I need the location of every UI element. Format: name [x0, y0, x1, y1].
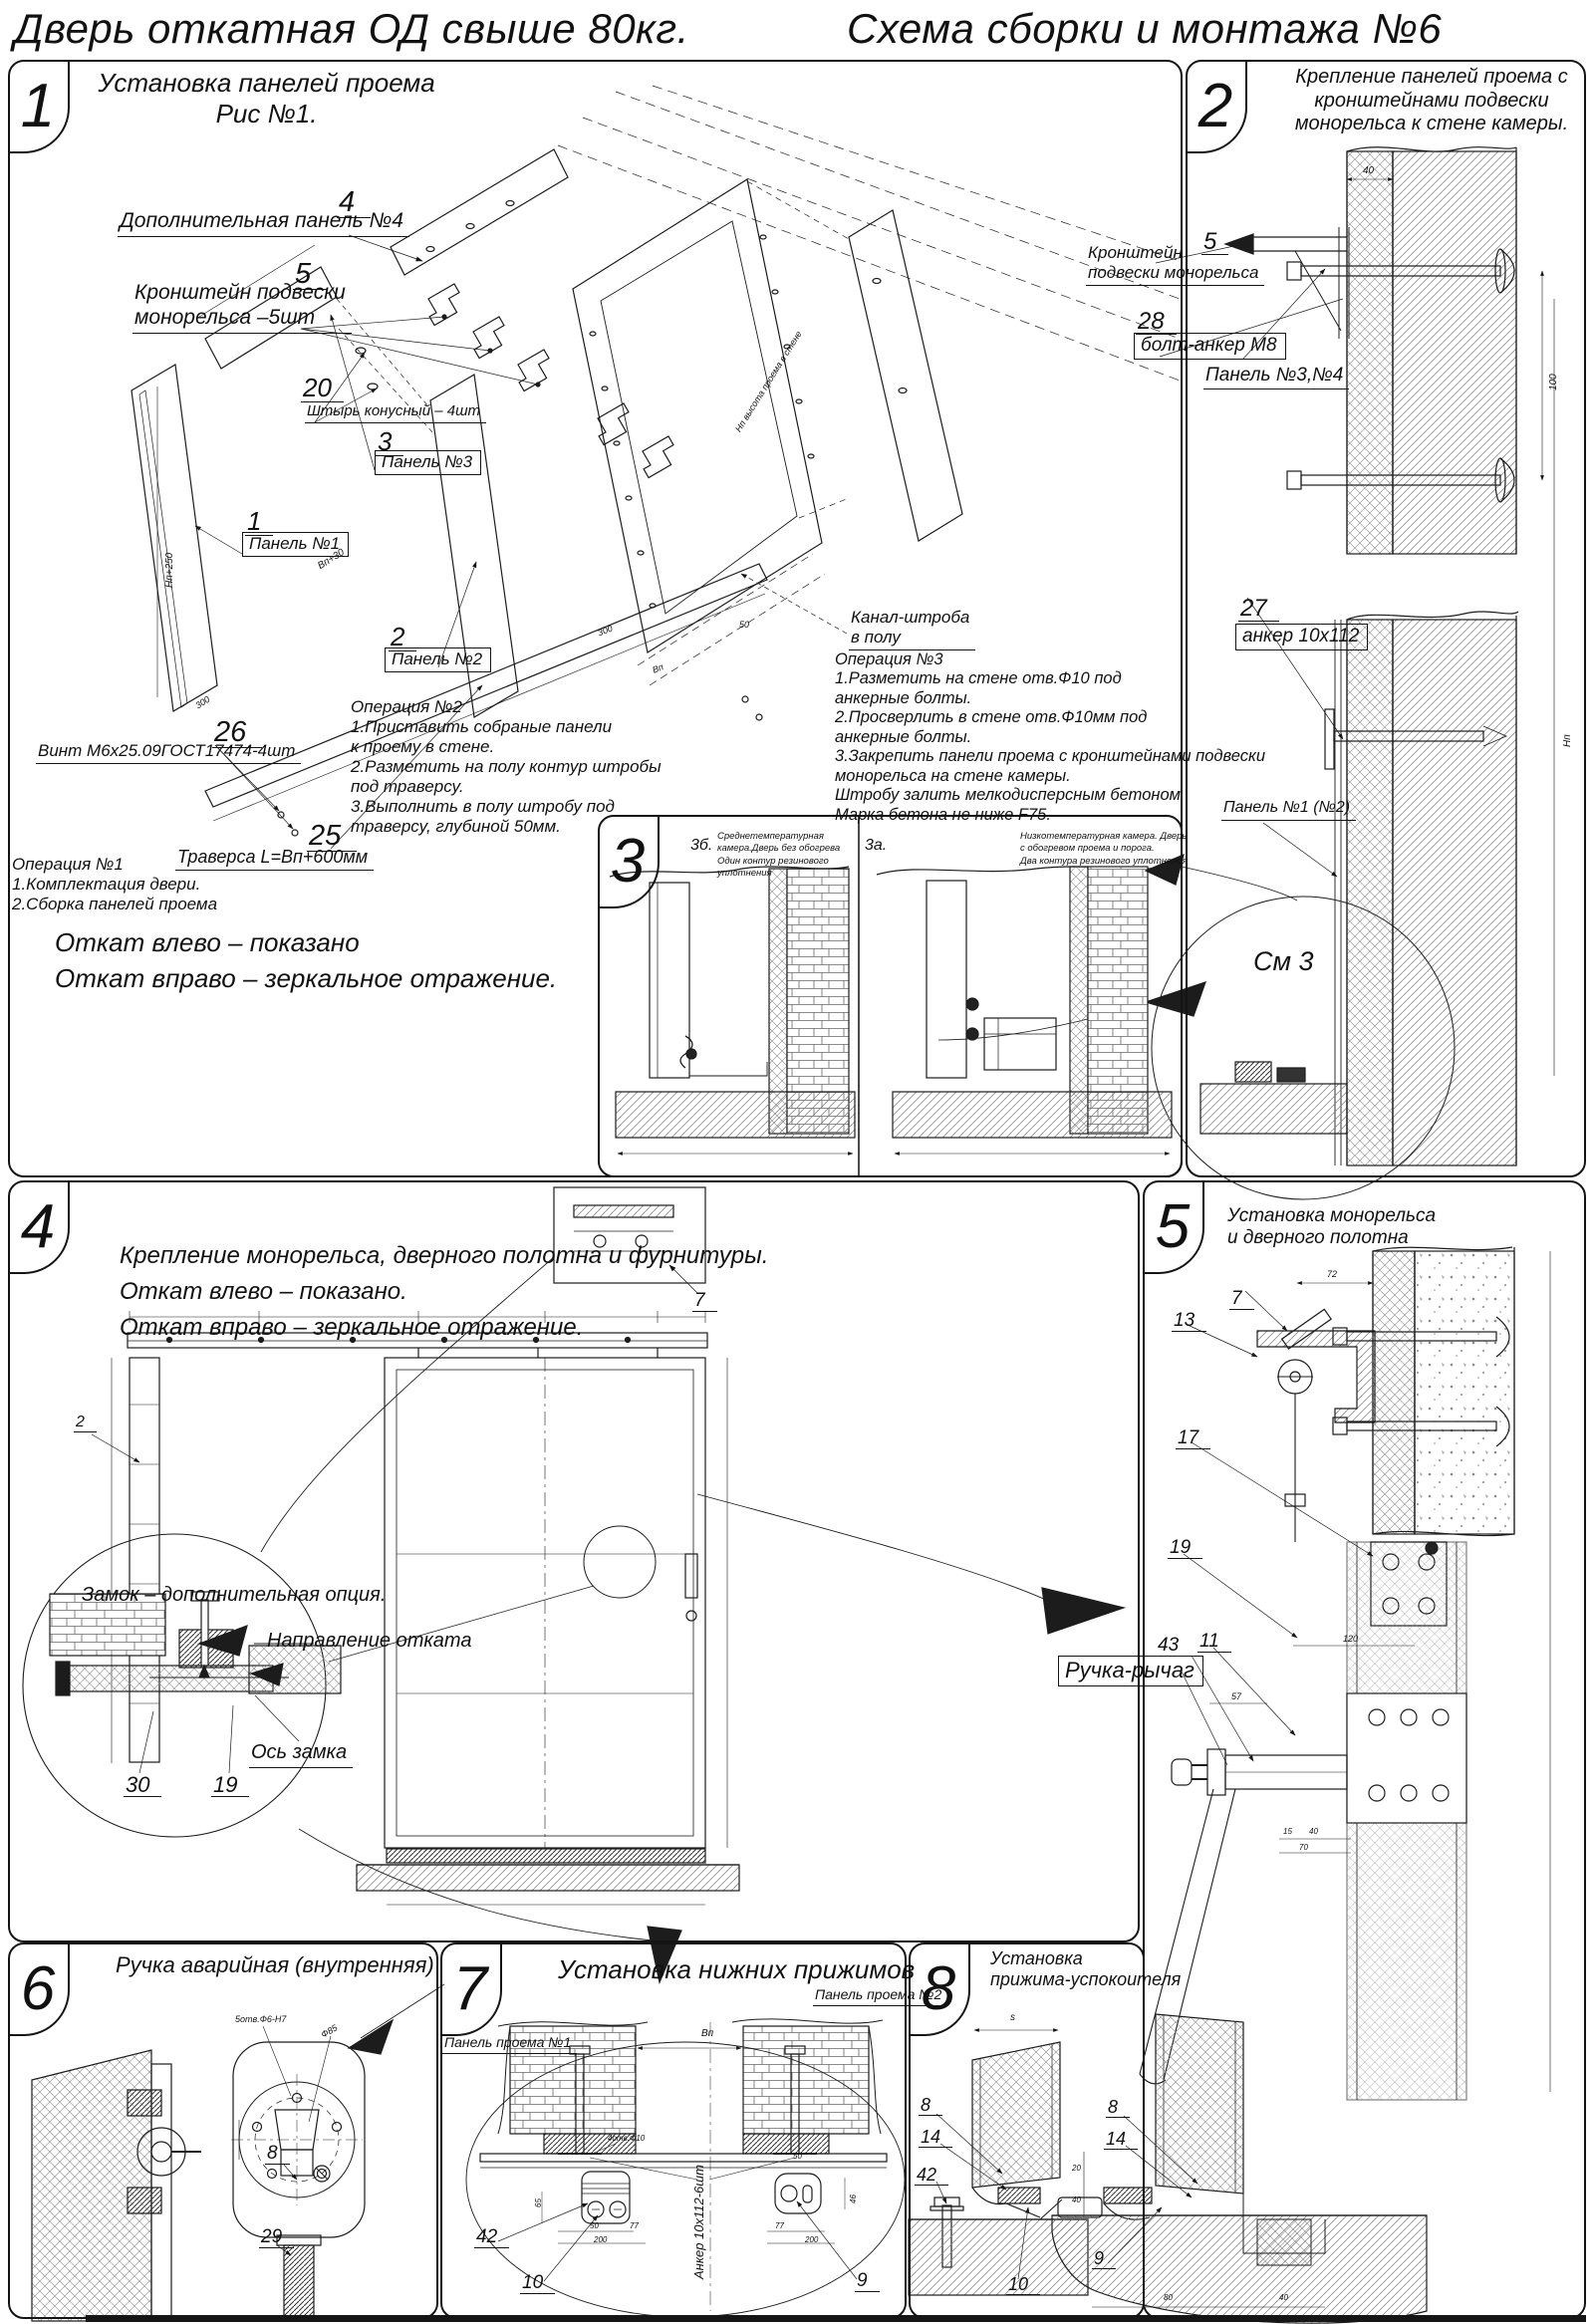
p6-callout29-num: 29: [259, 2227, 294, 2248]
p1-kanal-label: Канал-штроба в полу: [849, 608, 975, 650]
p1-callout20-num: 20: [301, 375, 344, 402]
p7-callout9-num: 9: [855, 2271, 880, 2292]
p6-callout8-num: 8: [265, 2144, 290, 2165]
p8-right-callout9-num: 9: [1092, 2249, 1116, 2269]
p2-title: Крепление панелей проема с кронштейнами …: [1283, 66, 1580, 136]
p1-callout5-label: Кронштейн подвески монорельса –5шт: [133, 281, 352, 334]
p5-callout17-num: 17: [1176, 1428, 1210, 1449]
p5-dim-15: 15: [1283, 1827, 1292, 1836]
p5-title: Установка монорельса и дверного полотна: [1227, 1205, 1436, 1250]
p1-operation3-note: Операция №3 1.Разметить на стене отв.Ф10…: [835, 650, 1265, 825]
sheet-title-right: Схема сборки и монтажа №6: [847, 4, 1442, 54]
p1-dim-height: Нп+250: [164, 553, 176, 588]
p7-dim-77a: 77: [630, 2221, 639, 2230]
p4-direction-label: Направление отката: [267, 1630, 472, 1654]
panel-7-number: 7: [453, 1953, 487, 2024]
panel-5-frame: [1143, 1180, 1586, 2319]
p2-dim-40: 40: [1363, 165, 1374, 177]
p5-callout11-num: 11: [1197, 1632, 1231, 1653]
p3-section-a-caption: Низкотемпературная камера. Дверь с обогр…: [1020, 831, 1192, 868]
p5-callout13-num: 13: [1172, 1311, 1206, 1332]
p2-see3-label: См 3: [1253, 946, 1314, 978]
p4-callout7-num: 7: [692, 1291, 717, 1312]
p1-callout26-label: Винт М6х25.09ГОСТ17474-4шт: [36, 741, 301, 764]
p2-callout27-label: анкер 10х112: [1235, 624, 1368, 650]
p4-callout19-num: 19: [211, 1773, 249, 1797]
p8-right-callout8-num: 8: [1106, 2098, 1130, 2118]
p1-slide-note: Откат влево – показано Откат вправо – зе…: [55, 924, 557, 997]
p5-callout19-num: 19: [1168, 1538, 1202, 1559]
p6-holes-note: 5отв.Ф6-Н7: [235, 2014, 286, 2025]
p7-callout10-num: 10: [520, 2273, 555, 2294]
p7-dim-200a: 200: [594, 2235, 607, 2244]
p7-dim-50a: 50: [590, 2221, 599, 2230]
p2-dim-100: 100: [1548, 374, 1560, 390]
panel-5-number: 5: [1156, 1191, 1190, 1262]
p7-dim-50b: 50: [793, 2152, 802, 2161]
sheet-title-left: Дверь откатная ОД свыше 80кг.: [14, 4, 689, 54]
p5-dim-120: 120: [1343, 1634, 1358, 1645]
p2-callout28-label: болт-анкер М8: [1134, 333, 1286, 360]
p4-lock-axis-label: Ось замка: [249, 1741, 353, 1768]
p2-callout5-label: Кронштейн подвески монорельса: [1086, 243, 1264, 286]
p1-operation1-note: Операция №1 1.Комплектация двери. 2.Сбор…: [12, 855, 217, 914]
p2-panel12-label: Панель №1 (№2): [1221, 799, 1356, 821]
panel-6-number: 6: [21, 1953, 55, 2024]
p4-title: Крепление монорельса, дверного полотна и…: [120, 1238, 768, 1346]
p8-right-callout14-num: 14: [1104, 2130, 1138, 2150]
p8-callout14-num: 14: [919, 2128, 952, 2148]
p5-callout7-num: 7: [1229, 1289, 1254, 1310]
p1-callout4-label: Дополнительная панель №4: [118, 209, 409, 237]
panel-2-number: 2: [1198, 71, 1232, 141]
p1-callout20-label: Штырь конусный – 4шт: [305, 402, 486, 423]
p3-section-a-num: 3а.: [865, 837, 887, 856]
p7-dim-65: 65: [534, 2198, 543, 2207]
p8-dim-40b: 40: [1279, 2293, 1288, 2302]
p7-dim-200b: 200: [805, 2235, 818, 2244]
p7-holes-note: 4отв.Ф10: [608, 2134, 645, 2143]
p8-callout8-num: 8: [919, 2096, 942, 2116]
p8-title: Установка прижима-успокоителя: [990, 1948, 1181, 1990]
p5-dim-70: 70: [1299, 1843, 1308, 1852]
p5-callout43-num: 43: [1156, 1636, 1191, 1657]
p8-callout10-num: 10: [1006, 2275, 1040, 2295]
p3-section-b-caption: Среднетемпературная камера.Дверь без обо…: [717, 831, 873, 880]
p7-title: Установка нижних прижимов: [558, 1954, 915, 1985]
p1-title: Установка панелей проема Рис №1.: [95, 68, 438, 129]
p7-panel1-label: Панель проема №1: [442, 2034, 577, 2054]
p8-dim-s: s: [1010, 2012, 1015, 2024]
p1-operation2-note: Операция №2 1.Приставить собраные панели…: [351, 697, 662, 837]
p7-anchor-note: Анкер 10х112-6шт: [691, 2165, 706, 2279]
panel-1-number: 1: [21, 71, 55, 141]
p5-dim-72: 72: [1327, 1269, 1337, 1280]
p2-panel34-label: Панель №3,№4: [1203, 365, 1349, 389]
panel-6-frame: [8, 1942, 438, 2319]
p7-callout42-num: 42: [474, 2227, 509, 2248]
p1-callout3-label: Панель №3: [375, 450, 481, 475]
p8-dim-20: 20: [1072, 2164, 1081, 2173]
p7-dim-46: 46: [849, 2195, 858, 2203]
p6-title: Ручка аварийная (внутренняя): [116, 1952, 434, 1978]
p8-dim-80: 80: [1164, 2293, 1173, 2302]
p5-dim-57: 57: [1231, 1691, 1241, 1702]
panel-4-number: 4: [21, 1191, 55, 1262]
drawing-sheet: 1 2 3 4 5 6 7 8 Дверь откатная ОД свыше …: [0, 0, 1594, 2324]
p7-dim-vp: Вп: [701, 2028, 713, 2040]
p2-callout27-num: 27: [1238, 596, 1279, 622]
panel-3-frame: [598, 815, 1183, 1177]
p4-callout2-num: 2: [74, 1415, 97, 1432]
p2-callout28-num: 28: [1136, 309, 1177, 335]
p8-dim-40: 40: [1072, 2195, 1081, 2204]
p3-section-b-num: 3б.: [690, 837, 712, 856]
p4-lock-note: Замок – дополнительная опция.: [82, 1584, 386, 1608]
p7-dim-77b: 77: [775, 2221, 784, 2230]
p2-dim-np: Нп: [1562, 734, 1574, 747]
p7-panel2-label: Панель проема №2: [813, 1986, 947, 2006]
p1-dim-50: 50: [739, 620, 749, 631]
p8-callout42-num: 42: [915, 2166, 948, 2186]
p5-dim-40: 40: [1309, 1827, 1318, 1836]
p5-handle-label: Ручка-рычаг: [1058, 1656, 1203, 1686]
p4-callout30-num: 30: [124, 1773, 161, 1797]
p1-callout2-label: Панель №2: [385, 647, 491, 672]
